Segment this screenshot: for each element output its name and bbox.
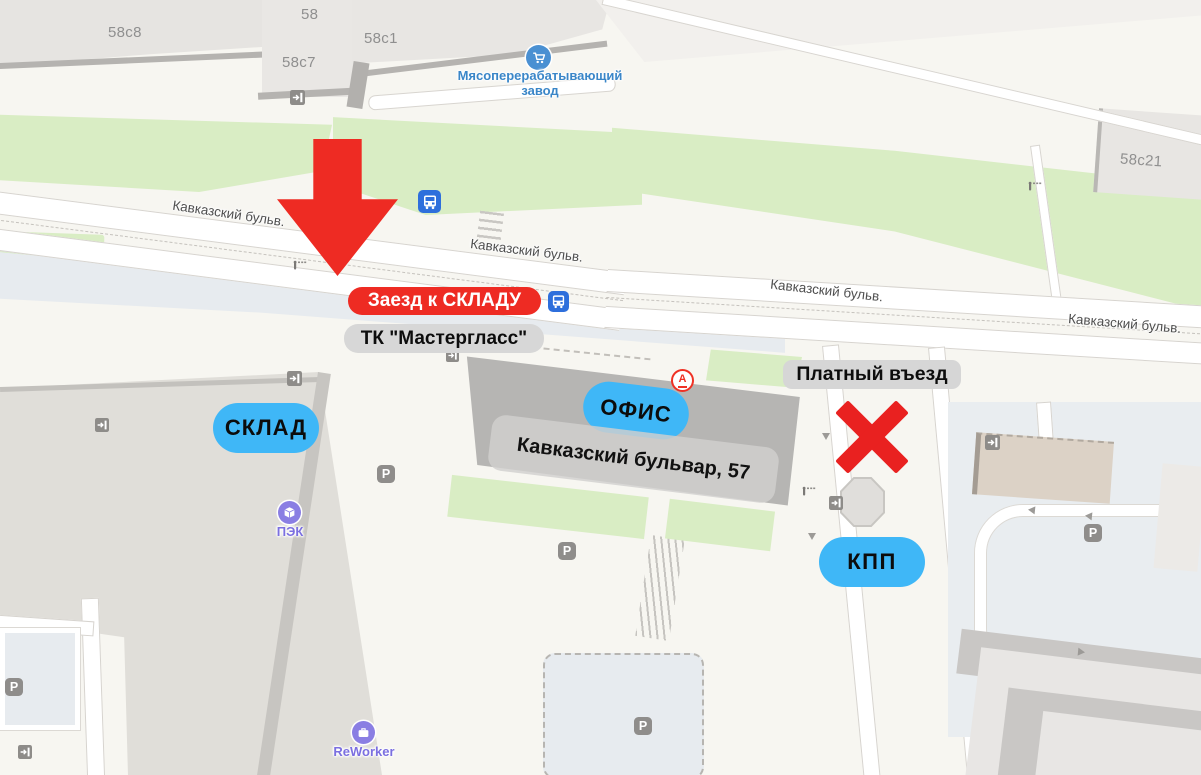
briefcase-icon[interactable] (352, 721, 375, 744)
green-area (0, 108, 332, 192)
alfabank-underline (678, 386, 687, 388)
poi-label-meat-plant[interactable]: Мясоперерабатывающий завод (455, 68, 625, 98)
red-cross-marker (835, 401, 909, 473)
entry-to-warehouse-badge: Заезд к СКЛАДУ (348, 287, 541, 315)
parking-icon: P (634, 717, 652, 735)
entrance-icon (287, 371, 302, 391)
building-shape-top-right (596, 0, 1201, 62)
building-label-58c8: 58с8 (108, 24, 142, 41)
barrier-gate-icon (802, 484, 816, 502)
warehouse-badge: СКЛАД (213, 403, 319, 453)
alfabank-icon[interactable]: А (671, 369, 694, 392)
parking-icon: P (5, 678, 23, 696)
barrier-gate-icon (293, 258, 307, 276)
map-canvas[interactable]: 58с8 58 58с7 58с1 58с21 Кавказский бульв… (0, 0, 1201, 775)
package-icon[interactable] (278, 501, 301, 524)
parking-icon: P (1084, 524, 1102, 542)
building-shape (1154, 463, 1201, 571)
stairs-path (635, 535, 685, 641)
road-direction-arrow (1028, 506, 1036, 515)
poi-label-pek[interactable]: ПЭК (266, 524, 314, 539)
barrier-gate-icon (1028, 179, 1042, 197)
paid-entry-badge: Платный въезд (783, 360, 961, 389)
building-label-58c7: 58с7 (282, 54, 316, 71)
entrance-icon (18, 745, 32, 764)
parking-icon: P (377, 465, 395, 483)
poi-label-line1: Мясоперерабатывающий (455, 68, 625, 83)
bus-stop-icon[interactable] (418, 190, 441, 213)
bus-stop-icon[interactable] (548, 291, 569, 312)
road-direction-arrow (1078, 648, 1086, 657)
alfabank-letter: А (679, 374, 687, 385)
building-shape-checkpoint (842, 479, 883, 525)
entrance-icon (985, 435, 1000, 455)
road-direction-arrow (1085, 512, 1093, 521)
entrance-icon (95, 418, 109, 437)
poi-label-reworker[interactable]: ReWorker (330, 744, 398, 759)
road-direction-arrow (808, 533, 816, 540)
road-direction-arrow (822, 433, 830, 440)
parking-icon: P (558, 542, 576, 560)
parking-area (543, 653, 704, 775)
mall-name-badge: ТК "Мастергласс" (344, 324, 544, 353)
entrance-icon (829, 496, 843, 515)
building-label-58: 58 (301, 6, 318, 23)
entrance-icon (290, 90, 305, 110)
shopping-cart-icon[interactable] (526, 45, 551, 70)
poi-label-line2: завод (455, 83, 625, 98)
checkpoint-badge: КПП (819, 537, 925, 587)
address-label: Кавказский бульвар, 57 (516, 433, 752, 484)
building-label-58c21: 58с21 (1119, 151, 1162, 171)
building-label-58c1: 58с1 (364, 30, 398, 47)
